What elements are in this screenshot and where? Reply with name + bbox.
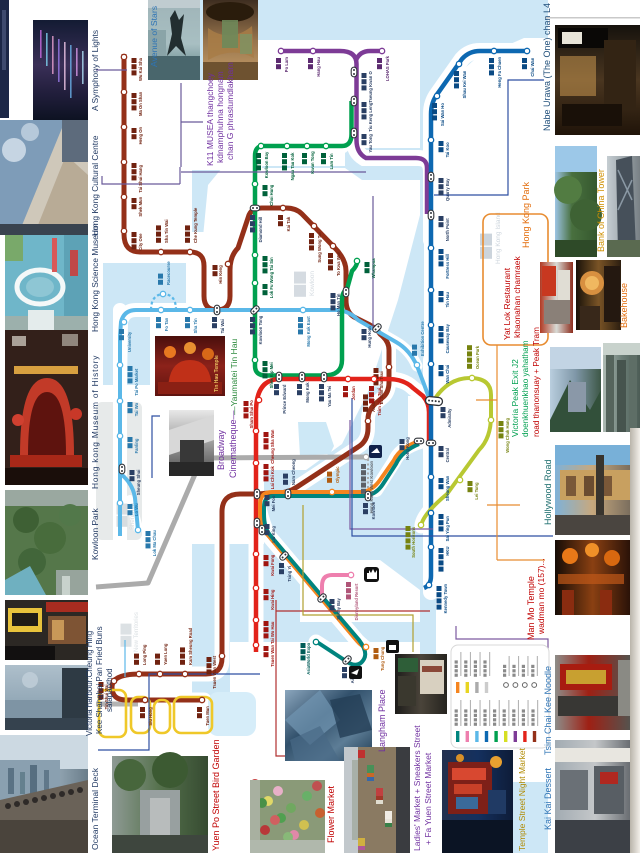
svg-text:Exhibition Centre: Exhibition Centre xyxy=(420,321,425,356)
svg-text:Tai Wo: Tai Wo xyxy=(134,402,139,416)
svg-text:Ma On Shan: Ma On Shan xyxy=(138,91,143,116)
svg-text:khaonahan chamraek: khaonahan chamraek xyxy=(512,255,522,338)
svg-text:Shau Kei Wan: Shau Kei Wan xyxy=(462,70,467,98)
svg-text:Heng Fa Chuen: Heng Fa Chuen xyxy=(497,56,502,87)
svg-text:Nam Cheong: Nam Cheong xyxy=(291,459,296,485)
svg-text:Tung Chung: Tung Chung xyxy=(380,646,385,671)
svg-text:Yat Lok Restaurant: Yat Lok Restaurant xyxy=(502,267,512,340)
svg-text:Sai Ying Pun: Sai Ying Pun xyxy=(445,516,450,542)
svg-text:Tin Hau Temple: Tin Hau Temple xyxy=(214,355,220,392)
svg-text:Cinematheque—: Cinematheque— xyxy=(228,410,238,478)
svg-text:University: University xyxy=(127,331,132,352)
svg-text:Kam Sheung Road: Kam Sheung Road xyxy=(188,627,193,665)
svg-text:Kwun Tong: Kwun Tong xyxy=(310,151,315,174)
svg-text:Kwai Fong: Kwai Fong xyxy=(270,554,275,576)
svg-text:South Horizons: South Horizons xyxy=(411,526,416,558)
svg-text:Disneyland Resort: Disneyland Resort xyxy=(354,583,359,620)
svg-text:Olympic: Olympic xyxy=(335,466,340,483)
svg-text:kdnamphuhna hongnam: kdnamphuhna hongnam xyxy=(215,71,225,163)
svg-text:doenkhuenkhao yahatham: doenkhuenkhao yahatham xyxy=(521,340,530,437)
svg-text:Wu Kai Sha: Wu Kai Sha xyxy=(138,57,143,81)
svg-text:Bank of China Tower: Bank of China Tower xyxy=(596,169,606,252)
svg-text:Choi Hung: Choi Hung xyxy=(269,184,274,206)
svg-text:Shek Mun: Shek Mun xyxy=(138,196,143,216)
svg-text:Chai Wan: Chai Wan xyxy=(530,57,535,76)
svg-text:Quarry Bay: Quarry Bay xyxy=(445,178,450,201)
svg-text:Sheung Wan: Sheung Wan xyxy=(445,475,450,501)
svg-text:Lai Chi Kok: Lai Chi Kok xyxy=(270,465,275,489)
svg-text:To Kwa Wan: To Kwa Wan xyxy=(336,251,341,276)
svg-text:Hong Kong: Hong Kong xyxy=(405,437,410,460)
svg-text:Wan Chai: Wan Chai xyxy=(445,365,450,384)
svg-text:Yuen Po Street Bird Garden: Yuen Po Street Bird Garden xyxy=(211,739,221,851)
svg-text:Kai Kai Dessert: Kai Kai Dessert xyxy=(543,767,553,830)
svg-text:Ho Man Tin: Ho Man Tin xyxy=(336,293,341,316)
svg-text:+ Fa Yuen Street Market: + Fa Yuen Street Market xyxy=(423,752,433,845)
svg-text:Jordan: Jordan xyxy=(351,386,356,400)
svg-text:Temple Street Night Market: Temple Street Night Market xyxy=(517,747,527,851)
svg-text:—Yaumatei Tin Hau: —Yaumatei Tin Hau xyxy=(229,339,239,415)
svg-text:Nabe Urawa (The One) chan L4: Nabe Urawa (The One) chan L4 xyxy=(542,3,552,131)
svg-text:Hang Hau: Hang Hau xyxy=(316,57,321,77)
svg-text:Tiu Keng Leng: Tiu Keng Leng xyxy=(368,102,373,131)
svg-text:Hong kong Museum of History: Hong kong Museum of History xyxy=(90,355,100,489)
svg-text:A Symphony of Lights: A Symphony of Lights xyxy=(90,30,100,111)
svg-text:Kowloon: Kowloon xyxy=(371,501,376,519)
svg-text:Sheung Shui: Sheung Shui xyxy=(136,470,141,496)
svg-text:Tai Wo Hau: Tai Wo Hau xyxy=(270,621,275,644)
svg-text:Ocean Park: Ocean Park xyxy=(475,345,480,369)
svg-text:New Territories: New Territories xyxy=(134,612,140,652)
svg-text:Lo Wu: Lo Wu xyxy=(134,503,139,516)
svg-text:Kwai Hing: Kwai Hing xyxy=(270,589,275,610)
svg-text:Mong Kok: Mong Kok xyxy=(305,382,310,403)
svg-text:Sham Shui Po: Sham Shui Po xyxy=(249,400,254,429)
svg-text:Hong Kong Park: Hong Kong Park xyxy=(521,181,531,248)
svg-text:Tai Koo: Tai Koo xyxy=(445,142,450,157)
svg-text:Yau Ma Tei: Yau Ma Tei xyxy=(327,386,332,407)
svg-text:Tsuen Wan: Tsuen Wan xyxy=(270,644,275,666)
svg-text:Fortress Hill: Fortress Hill xyxy=(445,254,450,278)
svg-text:Ladies' Market + Sneakers Stre: Ladies' Market + Sneakers Street xyxy=(412,725,422,851)
svg-text:chan G phrastumdlakharn: chan G phrastumdlakharn xyxy=(225,62,235,160)
svg-text:Wong Tai Sin: Wong Tai Sin xyxy=(269,257,274,284)
svg-text:Whampoa: Whampoa xyxy=(371,258,376,279)
svg-text:Admiralty: Admiralty xyxy=(447,408,452,428)
svg-text:Sung Wong Toi: Sung Wong Toi xyxy=(317,232,322,262)
svg-text:Tsuen Wan West: Tsuen Wan West xyxy=(212,655,217,689)
svg-text:Ocean Terminal Deck: Ocean Terminal Deck xyxy=(90,767,100,850)
svg-text:Central: Central xyxy=(445,448,450,462)
svg-text:Kee Shanghai Pan Fried Buns: Kee Shanghai Pan Fried Buns xyxy=(95,626,104,734)
svg-text:Sunny Bay: Sunny Bay xyxy=(336,597,341,619)
svg-text:Yuen Long: Yuen Long xyxy=(163,643,168,665)
svg-text:Avenue of Stars: Avenue of Stars xyxy=(149,6,159,67)
svg-text:Mei Foo: Mei Foo xyxy=(271,495,276,511)
svg-text:Kai Tak: Kai Tak xyxy=(286,216,291,231)
svg-text:Kennedy Town: Kennedy Town xyxy=(443,583,448,613)
svg-text:Flower Market: Flower Market xyxy=(326,785,336,843)
svg-text:Tuen Mun: Tuen Mun xyxy=(205,706,210,726)
svg-text:salapaothod: salapaothod xyxy=(105,668,114,712)
svg-text:Hong Kong Island: Hong Kong Island xyxy=(495,212,502,264)
svg-text:Tseung Kwan O: Tseung Kwan O xyxy=(368,71,373,103)
svg-text:Victoria Peak Exit J2: Victoria Peak Exit J2 xyxy=(510,359,520,437)
svg-text:Che Kung Temple: Che Kung Temple xyxy=(193,207,198,243)
svg-text:Tsing Yi: Tsing Yi xyxy=(287,566,292,582)
svg-text:LOHAS Park: LOHAS Park xyxy=(385,55,390,81)
svg-text:Tin Hau: Tin Hau xyxy=(445,292,450,308)
svg-text:Kowloon Tong: Kowloon Tong xyxy=(258,315,263,344)
svg-text:AsiaWorld Expo: AsiaWorld Expo xyxy=(306,642,311,674)
svg-text:Hong Kong Cultural Centre: Hong Kong Cultural Centre xyxy=(90,135,100,236)
svg-text:Heng On: Heng On xyxy=(138,127,143,145)
svg-text:Man Mo Temple: Man Mo Temple xyxy=(526,576,536,640)
svg-text:Siu Hong: Siu Hong xyxy=(148,707,153,726)
svg-text:road thanonsuay + Peak Tram: road thanonsuay + Peak Tram xyxy=(532,327,541,437)
svg-text:Kowloon: Kowloon xyxy=(309,271,316,296)
svg-text:Lam Tin: Lam Tin xyxy=(329,153,334,169)
svg-text:Lei Tung: Lei Tung xyxy=(474,482,479,500)
svg-text:Bakehouse: Bakehouse xyxy=(619,283,629,328)
svg-text:Tai Shui Hang: Tai Shui Hang xyxy=(138,165,143,193)
svg-text:Tsim Sha Tsui: Tsim Sha Tsui xyxy=(377,388,382,416)
svg-text:wadman mo (157)...: wadman mo (157)... xyxy=(536,558,546,635)
svg-text:Long Ping: Long Ping xyxy=(142,644,147,665)
svg-text:Causeway Bay: Causeway Bay xyxy=(445,323,450,353)
svg-text:Hin Keng: Hin Keng xyxy=(218,265,223,284)
svg-text:Fanling: Fanling xyxy=(134,438,139,453)
svg-text:Victoria harbour:Cheung Hing: Victoria harbour:Cheung Hing xyxy=(85,631,94,736)
svg-text:Sha Tin Wai: Sha Tin Wai xyxy=(164,220,169,244)
svg-text:K11 MUSEA thangchoey: K11 MUSEA thangchoey xyxy=(205,72,215,166)
svg-text:Cheung Sha Wan: Cheung Sha Wan xyxy=(270,429,275,464)
svg-text:Mong Kok East: Mong Kok East xyxy=(306,316,311,347)
svg-text:HKU: HKU xyxy=(445,547,450,556)
svg-text:Sha Tin: Sha Tin xyxy=(193,318,198,333)
svg-text:Broadway: Broadway xyxy=(216,429,226,470)
svg-text:Diamond Hill: Diamond Hill xyxy=(258,217,263,243)
svg-text:Tai Po Market: Tai Po Market xyxy=(134,368,139,396)
svg-text:Racecourse: Racecourse xyxy=(166,261,171,285)
svg-text:Hollywood Road: Hollywood Road xyxy=(543,459,553,525)
svg-text:Fo Tan: Fo Tan xyxy=(164,317,169,331)
svg-text:Lai King: Lai King xyxy=(271,526,276,543)
svg-text:Prince Edward: Prince Edward xyxy=(282,384,287,414)
svg-text:Hong Kong Science Museum: Hong Kong Science Museum xyxy=(90,224,100,332)
svg-text:North Point: North Point xyxy=(445,218,450,241)
svg-text:Kowloon Bay: Kowloon Bay xyxy=(264,151,269,178)
svg-text:Yau Tong: Yau Tong xyxy=(368,134,373,153)
svg-text:Langham Place: Langham Place xyxy=(377,689,387,752)
svg-text:Lok Ma Chau: Lok Ma Chau xyxy=(152,530,157,556)
svg-text:City One: City One xyxy=(138,233,143,251)
svg-text:Tsim Chai Kee Noodle: Tsim Chai Kee Noodle xyxy=(543,666,553,755)
svg-text:Sai Wan Ho: Sai Wan Ho xyxy=(440,103,445,126)
svg-text:Po Lam: Po Lam xyxy=(284,57,289,72)
svg-text:Lok Fu: Lok Fu xyxy=(269,284,274,298)
svg-text:Shek Kip Mei: Shek Kip Mei xyxy=(269,362,274,388)
svg-text:Kowloon Park: Kowloon Park xyxy=(90,508,100,560)
svg-text:Tai Wai: Tai Wai xyxy=(220,319,225,333)
svg-text:Hung Hom: Hung Hom xyxy=(367,326,372,347)
svg-text:Ngau Tau Kok: Ngau Tau Kok xyxy=(290,152,295,181)
